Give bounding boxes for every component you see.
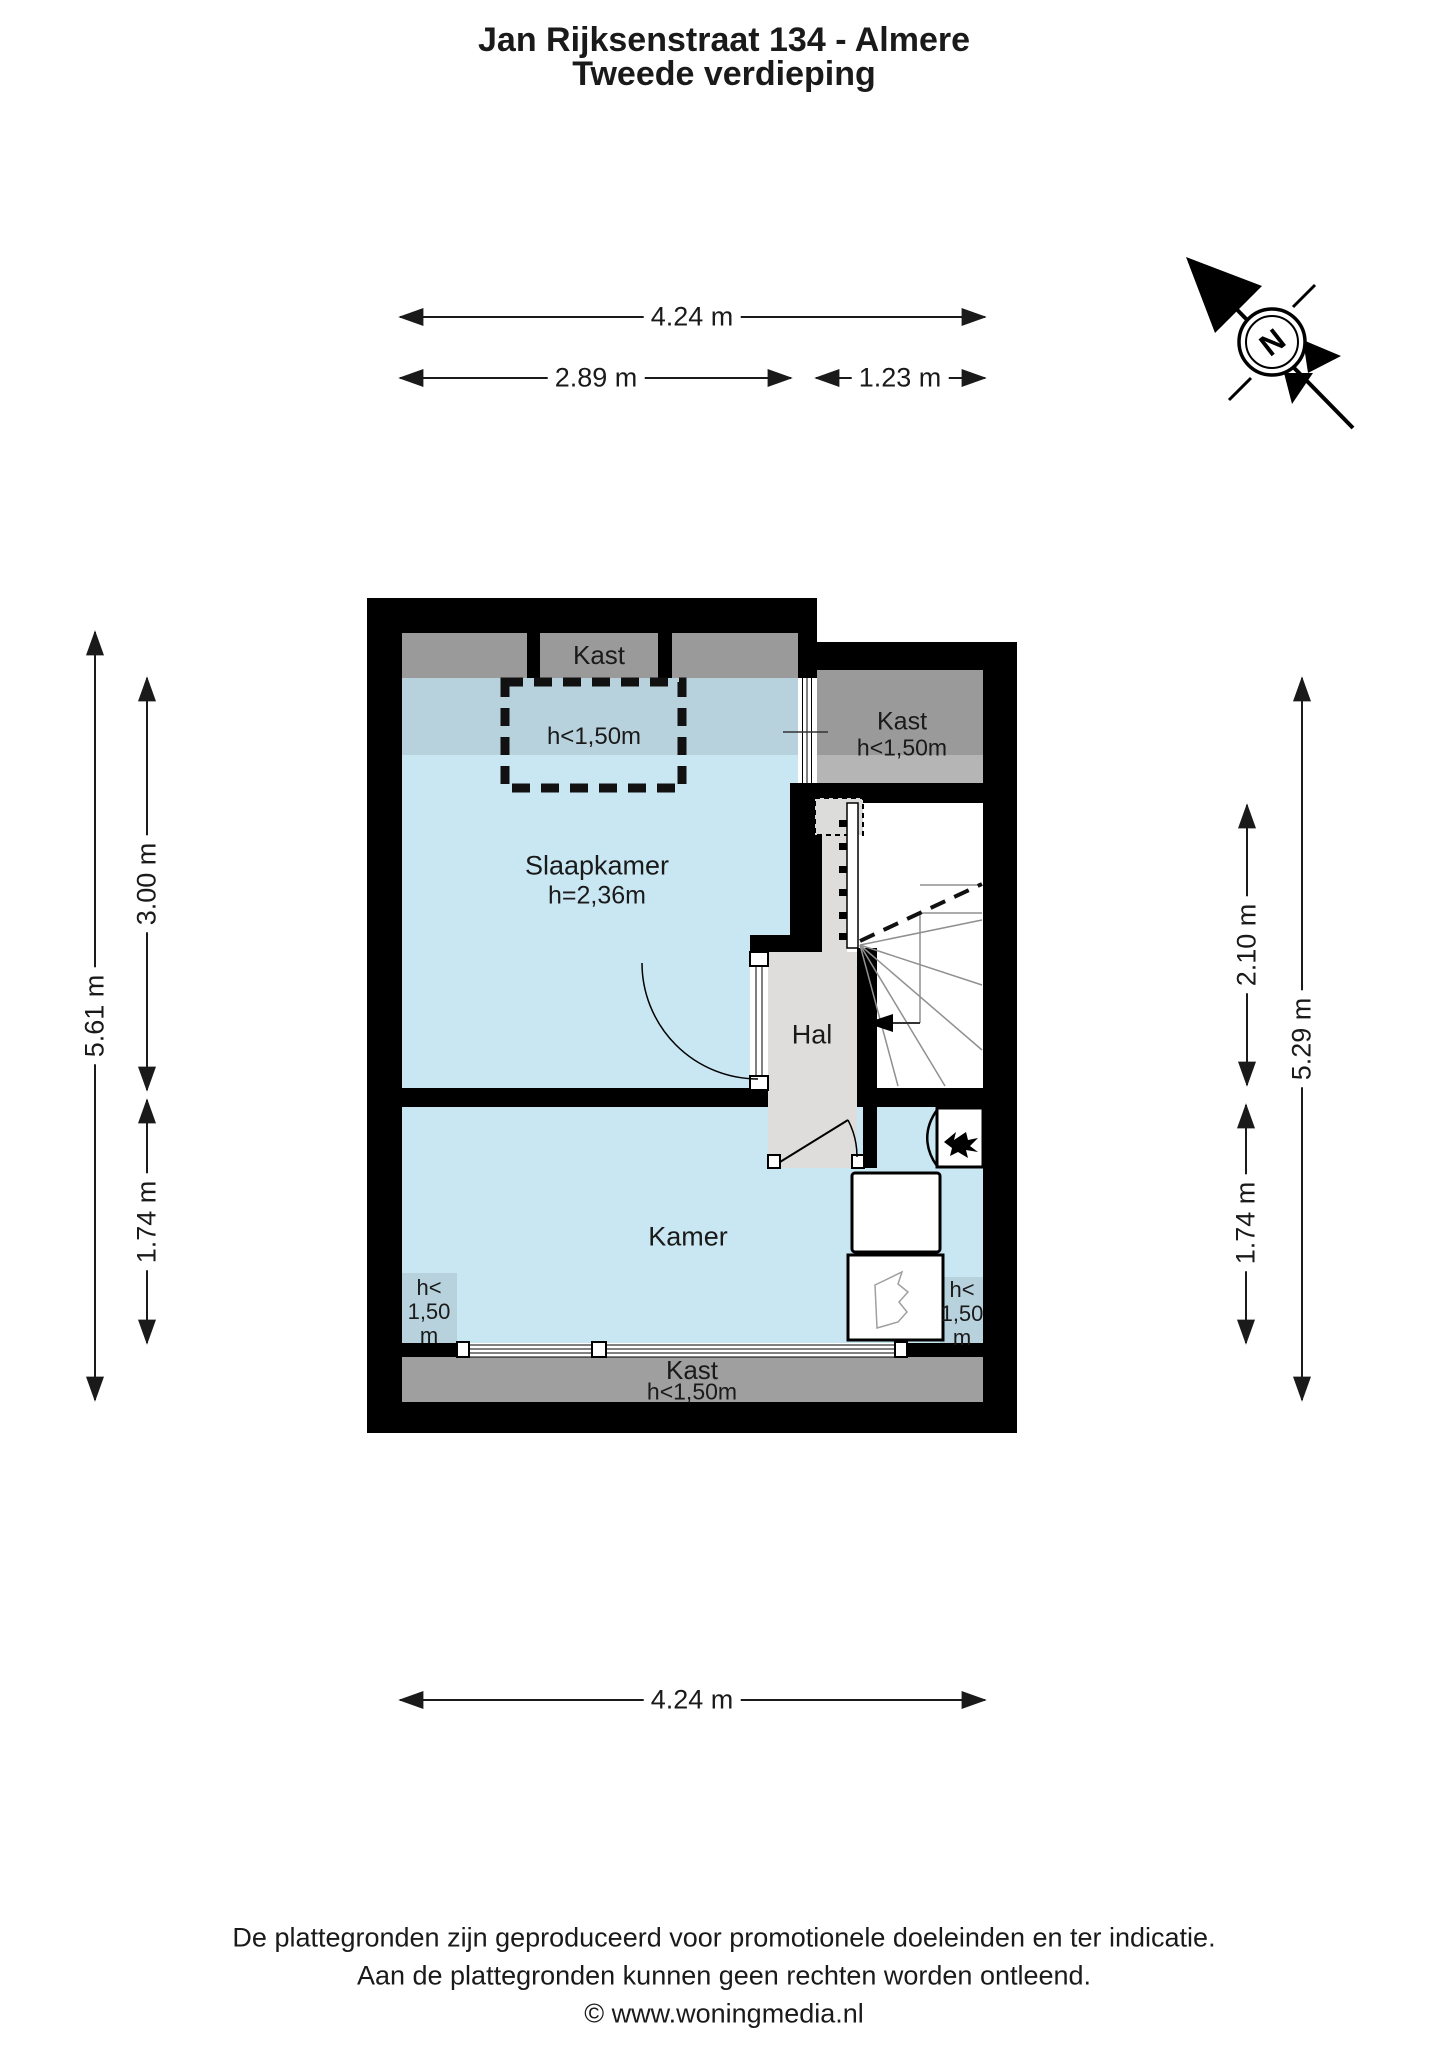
room-label-hal: Hal [792,1022,833,1049]
hal-floor [768,952,857,1168]
dormer-height-label: h<1,50m [547,725,641,749]
page-title-line1: Jan Rijksenstraat 134 - Almere [478,23,970,57]
dim-label-bottom-total: 4.24 m [644,1686,741,1715]
dim-label-right-total: 5.29 m [1288,991,1317,1088]
room-label-kast-bottom-height: h<1,50m [647,1381,737,1404]
wall-top-main [367,598,817,633]
room-label-kamer: Kamer [648,1224,728,1251]
wall-bottom [367,1402,1017,1433]
dim-label-right-upper: 2.10 m [1233,897,1262,994]
room-label-slaapkamer-height: h=2,36m [548,884,646,909]
dim-label-left-upper: 3.00 m [133,836,162,933]
room-label-kast-right-height: h<1,50m [857,737,947,760]
wall-below-stairs [857,1088,1017,1107]
dim-label-left-lower: 1.74 m [133,1174,162,1271]
kast-divider-2 [658,633,672,678]
floorplan-page: N Jan Rijksenstraat 134 - Almere Tweede … [0,0,1448,2048]
kast-divider-1 [527,633,540,678]
low-headroom-right-line1: h< [949,1279,974,1301]
dim-label-top-right: 1.23 m [852,364,949,393]
washing-machine [848,1255,943,1340]
appliance-box [852,1173,940,1252]
low-headroom-right-line2: 1,50 [941,1303,984,1325]
room-label-slaapkamer: Slaapkamer [525,853,669,880]
wall-mid-horizontal [367,1088,768,1107]
dim-label-left-total: 5.61 m [81,968,110,1065]
low-headroom-left-line2: 1,50 [408,1301,451,1323]
footer-copyright: © www.woningmedia.nl [584,2001,864,2028]
wall-bottom-inner-right [907,1343,983,1357]
wall-nook-left [863,1107,877,1168]
low-headroom-left-line3: m [420,1325,438,1347]
room-label-kast-right: Kast [877,710,927,735]
room-label-kast-top: Kast [573,642,625,668]
dim-label-top-left: 2.89 m [548,364,645,393]
low-headroom-right-line3: m [953,1327,971,1349]
dim-label-top-total: 4.24 m [644,303,741,332]
wall-stub-horizontal [750,935,807,952]
dim-label-right-lower: 1.74 m [1232,1175,1261,1272]
compass-icon: N [1186,257,1353,428]
wall-right [983,642,1017,1433]
stair-balustrade [847,803,858,948]
low-headroom-left-line1: h< [416,1277,441,1299]
footer-disclaimer-line1: De plattegronden zijn geproduceerd voor … [232,1925,1215,1952]
page-title-line2: Tweede verdieping [572,57,876,91]
footer-disclaimer-line2: Aan de plattegronden kunnen geen rechten… [357,1963,1091,1990]
wall-left [367,598,402,1433]
